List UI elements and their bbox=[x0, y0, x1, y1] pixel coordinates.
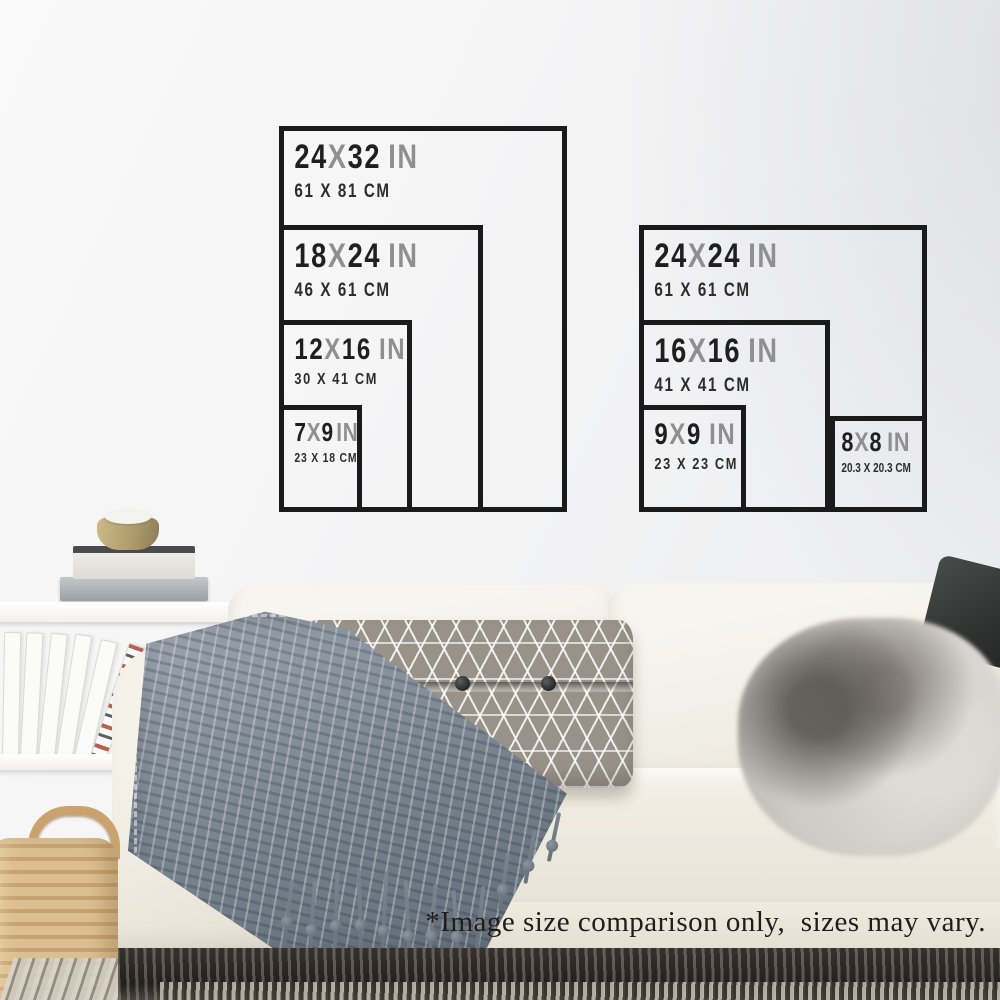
dim-height: 16 bbox=[708, 332, 741, 370]
dim-height: 8 bbox=[869, 427, 882, 457]
size-box-9x9: 9X9IN 23 X 23 CM bbox=[644, 405, 746, 507]
dim-unit: IN bbox=[748, 237, 778, 275]
dim-height: 32 bbox=[348, 138, 381, 176]
size-cm: 30 X 41 CM bbox=[294, 371, 382, 389]
size-chart-square: 24X24IN 61 X 61 CM 16X16IN 41 X 41 CM 9X… bbox=[639, 225, 927, 512]
scene: 24X32IN 61 X 81 CM 18X24IN 46 X 61 CM 12… bbox=[0, 0, 1000, 1000]
size-inches: 7X9IN bbox=[294, 419, 342, 446]
dim-height: 9 bbox=[321, 417, 333, 447]
size-cm: 23 X 18 CM bbox=[294, 450, 342, 465]
size-cm: 41 X 41 CM bbox=[654, 375, 788, 397]
size-inches: 24X24IN bbox=[654, 239, 866, 275]
grey-book bbox=[60, 577, 208, 601]
size-label-24x24: 24X24IN 61 X 61 CM bbox=[644, 230, 866, 302]
dim-separator: X bbox=[328, 138, 348, 176]
size-inches: 8X8IN bbox=[841, 428, 904, 456]
dim-separator: X bbox=[328, 237, 348, 275]
dim-width: 12 bbox=[294, 333, 324, 366]
dim-width: 24 bbox=[654, 237, 687, 275]
size-cm: 61 X 81 CM bbox=[294, 181, 506, 203]
disclaimer-text: *Image size comparison only, sizes may v… bbox=[425, 906, 986, 939]
size-cm: 46 X 61 CM bbox=[294, 280, 439, 302]
dim-height: 24 bbox=[708, 237, 741, 275]
size-label-16x16: 16X16IN 41 X 41 CM bbox=[644, 325, 789, 397]
dim-separator: X bbox=[854, 427, 869, 457]
size-cm: 20.3 X 20.3 CM bbox=[841, 461, 904, 475]
dim-height: 16 bbox=[342, 333, 372, 366]
candle-wax bbox=[105, 510, 151, 524]
size-label-24x32: 24X32IN 61 X 81 CM bbox=[284, 131, 506, 203]
book-stack bbox=[55, 522, 210, 602]
dim-unit: IN bbox=[709, 418, 736, 451]
book bbox=[2, 632, 21, 756]
dim-width: 16 bbox=[654, 332, 687, 370]
dim-separator: X bbox=[324, 333, 342, 366]
size-label-7x9: 7X9IN 23 X 18 CM bbox=[284, 410, 342, 465]
white-book bbox=[73, 546, 195, 579]
size-inches: 12X16IN bbox=[294, 334, 382, 366]
dim-width: 8 bbox=[841, 427, 854, 457]
dim-separator: X bbox=[669, 418, 687, 451]
dim-width: 7 bbox=[294, 417, 306, 447]
dim-width: 9 bbox=[654, 418, 669, 451]
size-label-18x24: 18X24IN 46 X 61 CM bbox=[284, 230, 439, 302]
size-inches: 18X24IN bbox=[294, 239, 439, 275]
pillow-button bbox=[455, 676, 470, 691]
rug-fringe bbox=[160, 982, 1000, 1000]
size-label-12x16: 12X16IN 30 X 41 CM bbox=[284, 325, 382, 389]
dim-separator: X bbox=[688, 332, 708, 370]
size-box-7x9: 7X9IN 23 X 18 CM bbox=[284, 405, 362, 507]
size-cm: 23 X 23 CM bbox=[654, 456, 721, 474]
size-cm: 61 X 61 CM bbox=[654, 280, 866, 302]
size-box-8x8: 8X8IN 20.3 X 20.3 CM bbox=[830, 416, 922, 507]
pillow-button bbox=[541, 676, 556, 691]
shelf-board-top bbox=[0, 602, 244, 622]
dim-height: 9 bbox=[687, 418, 702, 451]
size-label-9x9: 9X9IN 23 X 23 CM bbox=[644, 410, 722, 474]
size-inches: 16X16IN bbox=[654, 334, 788, 370]
size-inches: 24X32IN bbox=[294, 140, 506, 176]
dim-unit: IN bbox=[336, 417, 358, 447]
dim-width: 18 bbox=[294, 237, 327, 275]
dim-unit: IN bbox=[887, 427, 910, 457]
dim-unit: IN bbox=[379, 333, 406, 366]
dim-separator: X bbox=[688, 237, 708, 275]
dim-unit: IN bbox=[388, 237, 418, 275]
size-chart-portrait: 24X32IN 61 X 81 CM 18X24IN 46 X 61 CM 12… bbox=[279, 126, 567, 512]
size-label-8x8: 8X8IN 20.3 X 20.3 CM bbox=[835, 421, 905, 475]
dim-separator: X bbox=[307, 417, 322, 447]
dim-height: 24 bbox=[348, 237, 381, 275]
size-inches: 9X9IN bbox=[654, 419, 721, 451]
fur-pillow bbox=[738, 618, 1000, 856]
dim-unit: IN bbox=[748, 332, 778, 370]
dim-unit: IN bbox=[388, 138, 418, 176]
dim-width: 24 bbox=[294, 138, 327, 176]
